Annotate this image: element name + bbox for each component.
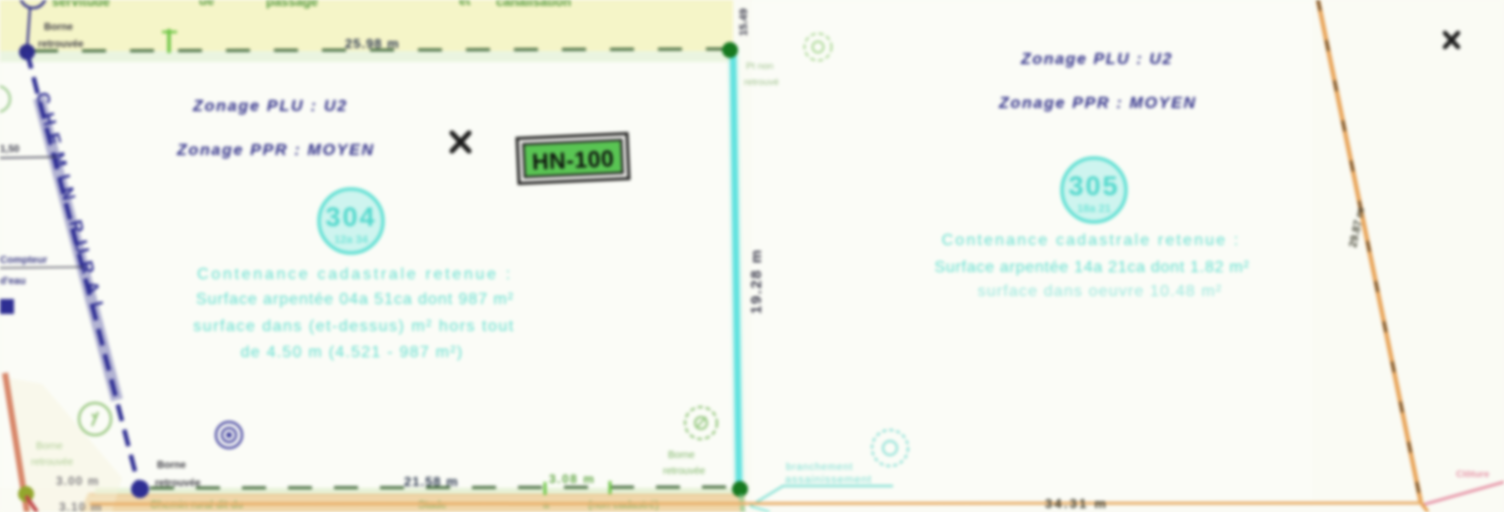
svg-text:assainissement: assainissement (785, 474, 872, 486)
svg-text:passage: passage (266, 0, 318, 9)
svg-text:Surface arpentée 04a 51ca dont: Surface arpentée 04a 51ca dont 987 m² (196, 291, 514, 308)
svg-text:34.31 m: 34.31 m (1045, 496, 1108, 511)
svg-text:canalisation: canalisation (496, 0, 571, 9)
svg-text:Zonage PLU : U2: Zonage PLU : U2 (192, 98, 348, 115)
svg-text:1,50: 1,50 (0, 144, 20, 155)
svg-text:305: 305 (1068, 171, 1119, 201)
svg-text:21.58 m: 21.58 m (404, 474, 459, 489)
svg-text:Zonage PPR : MOYEN: Zonage PPR : MOYEN (176, 142, 375, 159)
svg-text:Zonage PPR : MOYEN: Zonage PPR : MOYEN (998, 95, 1197, 112)
svg-text:Zonage PLU : U2: Zonage PLU : U2 (1020, 51, 1173, 68)
svg-text:12a 34: 12a 34 (334, 234, 369, 246)
svg-text:HN-100: HN-100 (531, 145, 614, 175)
svg-text:25.98 m: 25.98 m (345, 36, 400, 51)
svg-text:19.28 m: 19.28 m (748, 248, 765, 314)
svg-text:de: de (199, 0, 214, 8)
svg-text:de 4.50 m (4.521 - 987 m²): de 4.50 m (4.521 - 987 m²) (241, 344, 464, 361)
svg-text:Surface arpentée 14a 21ca dont: Surface arpentée 14a 21ca dont 1.82 m² (934, 259, 1249, 276)
svg-text:Contenance cadastrale retenue: Contenance cadastrale retenue : (197, 266, 513, 283)
svg-text:Borne: Borne (668, 450, 695, 461)
svg-text:Compteur: Compteur (0, 255, 47, 266)
svg-text:18a 21: 18a 21 (1077, 203, 1111, 215)
svg-text:servitude: servitude (52, 0, 110, 9)
svg-text:Borne: Borne (44, 22, 73, 33)
svg-text:branchement: branchement (786, 462, 853, 473)
svg-text:retrouvée: retrouvée (38, 39, 84, 50)
svg-text:retrouvée: retrouvée (663, 466, 706, 477)
svg-text:surface dans (et-dessus) m² ho: surface dans (et-dessus) m² hors tout (193, 318, 514, 335)
svg-text:Contenance cadastrale retenue: Contenance cadastrale retenue : (942, 232, 1241, 249)
svg-text:d'eau: d'eau (0, 276, 26, 287)
svg-text:Pt non: Pt non (746, 61, 773, 72)
svg-text:3.08 m: 3.08 m (549, 472, 595, 486)
svg-text:304: 304 (325, 202, 376, 232)
svg-text:Borne: Borne (157, 460, 186, 471)
svg-text:Clôture: Clôture (1456, 469, 1489, 480)
svg-text:surface dans oeuvre 10.48 m²: surface dans oeuvre 10.48 m² (978, 283, 1223, 300)
svg-text:et: et (459, 0, 471, 8)
svg-text:retrouvé: retrouvé (744, 77, 779, 88)
svg-text:15.49: 15.49 (738, 8, 750, 36)
